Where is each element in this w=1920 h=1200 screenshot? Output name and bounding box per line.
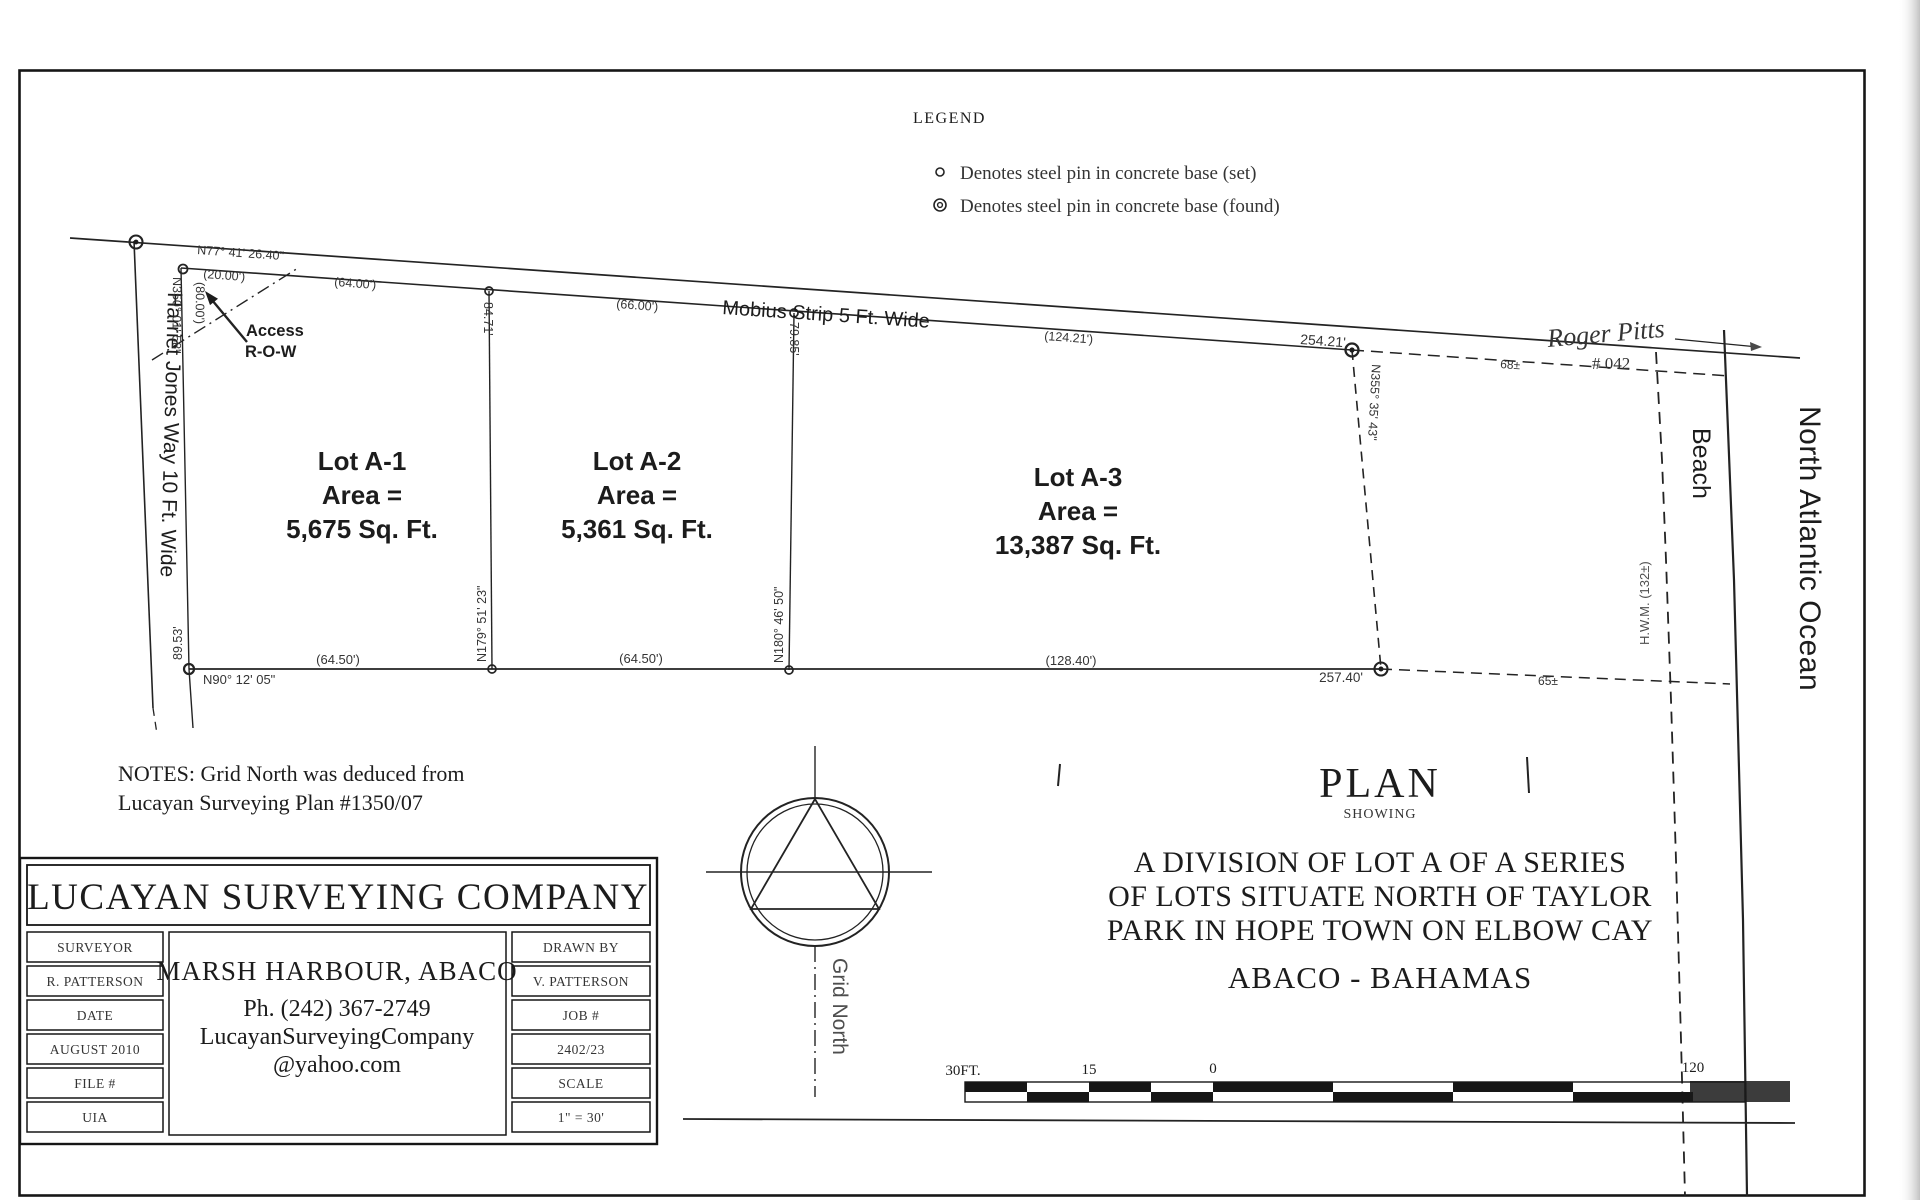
- dim-beach-bottom: 65±: [1538, 674, 1558, 688]
- lot-a1-area: 5,675 Sq. Ft.: [286, 514, 438, 544]
- dim-nw-dist: (20.00'): [203, 267, 246, 284]
- dim-a1-bottom: (64.50'): [316, 652, 360, 667]
- label-drawn-by: DRAWN BY: [543, 940, 619, 955]
- company-address: MARSH HARBOUR, ABACO: [156, 956, 517, 986]
- company-email-line1: LucayanSurveyingCompany: [200, 1024, 475, 1050]
- lot-a1-area-eq: Area =: [322, 480, 402, 510]
- label-file-number: FILE #: [74, 1076, 116, 1091]
- plan-showing: SHOWING: [1343, 807, 1416, 822]
- plan-desc-line3: PARK IN HOPE TOWN ON ELBOW CAY: [1107, 914, 1653, 947]
- value-surveyor: R. PATTERSON: [46, 974, 143, 989]
- dim-east-top: 254.21': [1300, 331, 1347, 350]
- dim-west-bearing: N350° 01' 58": [169, 277, 184, 354]
- label-job-number: JOB #: [563, 1008, 600, 1023]
- plan-location: ABACO - BAHAMAS: [1228, 960, 1532, 995]
- dim-a23-meas: 79.85': [787, 322, 801, 356]
- dim-east-bottom: 257.40': [1319, 670, 1363, 685]
- dim-a23-bearing: N180° 46' 50": [772, 587, 786, 663]
- scale-label-30ft: 30FT.: [945, 1063, 980, 1079]
- scale-label-15: 15: [1082, 1062, 1097, 1078]
- access-row-label-line1: Access: [246, 322, 304, 340]
- dim-a2-bottom: (64.50'): [619, 651, 663, 666]
- ocean-label: North Atlantic Ocean: [1793, 406, 1826, 691]
- value-job-number: 2402/23: [557, 1042, 605, 1057]
- scale-bar-smear: [1690, 1081, 1790, 1102]
- high-water-mark-label: H.W.M. (132±): [1637, 561, 1652, 645]
- grid-north-label: Grid North: [828, 958, 851, 1055]
- dim-a12-meas: 84.71': [481, 302, 495, 336]
- value-date: AUGUST 2010: [50, 1042, 140, 1057]
- lot-a3-area: 13,387 Sq. Ft.: [995, 530, 1161, 560]
- plan-desc-line2: OF LOTS SITUATE NORTH OF TAYLOR: [1108, 880, 1652, 913]
- company-phone: Ph. (242) 367-2749: [243, 996, 430, 1022]
- plan-desc-line1: A DIVISION OF LOT A OF A SERIES: [1134, 846, 1627, 879]
- lot-a2-area-eq: Area =: [597, 480, 677, 510]
- dim-west-meas: 89.53': [171, 626, 185, 660]
- lot-a3-area-eq: Area =: [1038, 496, 1118, 526]
- scan-edge-shadow: [1898, 0, 1920, 1200]
- company-email-line2: @yahoo.com: [273, 1052, 401, 1078]
- label-surveyor: SURVEYOR: [57, 940, 133, 955]
- value-scale: 1" = 30': [558, 1110, 605, 1125]
- survey-plan-scan: LEGEND Denotes steel pin in concrete bas…: [0, 0, 1920, 1200]
- scale-label-0: 0: [1209, 1061, 1217, 1077]
- legend-title: LEGEND: [913, 110, 986, 127]
- access-row-label-line2: R-O-W: [245, 343, 297, 361]
- dim-a12-bearing: N179° 51' 23": [475, 586, 489, 662]
- dim-west-dist: (80.00'): [193, 282, 207, 324]
- beach-label: Beach: [1687, 428, 1715, 499]
- plan-title: PLAN: [1319, 761, 1441, 807]
- label-date: DATE: [77, 1008, 114, 1023]
- dim-south-bearing: N90° 12' 05": [203, 672, 276, 687]
- lot-a1-name: Lot A-1: [318, 446, 407, 476]
- dim-a3-bottom: (128.40'): [1046, 653, 1097, 668]
- dim-a1-top: (64.00'): [334, 275, 377, 292]
- signature-number: # 042: [1592, 354, 1630, 373]
- legend-item-set: Denotes steel pin in concrete base (set): [960, 163, 1257, 184]
- label-scale: SCALE: [558, 1076, 603, 1091]
- legend-item-found: Denotes steel pin in concrete base (foun…: [960, 196, 1280, 217]
- scale-label-120: 120: [1682, 1060, 1705, 1076]
- company-name: LUCAYAN SURVEYING COMPANY: [27, 877, 649, 918]
- dim-a2-top: (66.00'): [616, 297, 659, 314]
- lot-a2-area: 5,361 Sq. Ft.: [561, 514, 713, 544]
- lot-a2-name: Lot A-2: [593, 446, 682, 476]
- notes-line2: Lucayan Surveying Plan #1350/07: [118, 790, 423, 815]
- dim-beach-top: 68±: [1500, 357, 1521, 372]
- value-file-number: UIA: [82, 1110, 108, 1125]
- value-drawn-by: V. PATTERSON: [533, 974, 629, 989]
- notes-line1: NOTES: Grid North was deduced from: [118, 761, 464, 786]
- lot-a3-name: Lot A-3: [1034, 462, 1123, 492]
